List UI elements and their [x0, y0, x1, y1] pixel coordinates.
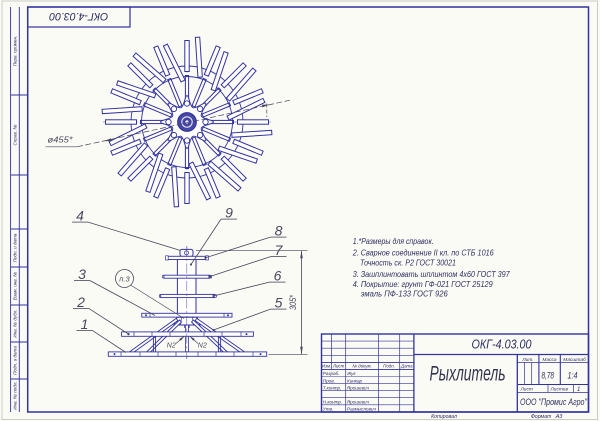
svg-text:4: 4 — [76, 208, 84, 224]
svg-text:№ докум.: № докум. — [352, 363, 371, 368]
svg-text:7: 7 — [275, 242, 284, 258]
svg-text:5: 5 — [275, 295, 283, 311]
svg-text:1.*Размеры для справок.: 1.*Размеры для справок. — [353, 236, 434, 246]
svg-text:ОКГ-4.03.00: ОКГ-4.03.00 — [472, 338, 532, 352]
svg-text:Разраб.: Разраб. — [323, 371, 340, 376]
svg-text:3. Зашплинтовать шплинтом 4х60: 3. Зашплинтовать шплинтом 4х60 ГОСТ 397 — [353, 269, 510, 279]
svg-text:N2: N2 — [198, 343, 207, 350]
svg-text:Справ. №: Справ. № — [13, 125, 18, 146]
svg-text:Масштаб: Масштаб — [563, 357, 586, 363]
svg-text:Размыслович: Размыслович — [347, 407, 377, 412]
svg-text:Копировал: Копировал — [431, 414, 457, 420]
svg-text:6: 6 — [274, 268, 282, 284]
svg-text:Лит.: Лит. — [521, 357, 533, 363]
svg-text:305*: 305* — [288, 295, 299, 310]
svg-text:Пров.: Пров. — [323, 378, 335, 383]
svg-text:1: 1 — [81, 316, 89, 332]
svg-text:Т.контр.: Т.контр. — [323, 385, 342, 390]
svg-text:Подп. и дата: Подп. и дата — [13, 346, 18, 375]
svg-text:2. Сварное соединение II кл. п: 2. Сварное соединение II кл. по СТБ 1016 — [352, 248, 494, 258]
svg-text:Подп.: Подп. — [383, 363, 395, 368]
svg-text:8: 8 — [275, 223, 283, 239]
svg-text:Лист: Лист — [520, 387, 533, 393]
svg-text:8,78: 8,78 — [542, 371, 555, 381]
svg-text:Лист: Лист — [332, 363, 345, 368]
svg-text:п.3: п.3 — [119, 275, 130, 284]
svg-text:Ярошевич: Ярошевич — [346, 400, 370, 405]
svg-text:Кинкар: Кинкар — [347, 378, 363, 383]
svg-text:2: 2 — [76, 294, 85, 310]
svg-text:Листов: Листов — [550, 387, 569, 393]
svg-text:Взам. инв. №: Взам. инв. № — [13, 272, 18, 300]
svg-text:ООО "Промис Агро": ООО "Промис Агро" — [520, 397, 587, 408]
svg-text:Точность ск. Р2 ГОСТ 30021: Точность ск. Р2 ГОСТ 30021 — [360, 258, 456, 268]
svg-text:N2: N2 — [167, 343, 176, 350]
svg-text:Ярошевич: Ярошевич — [346, 385, 370, 390]
svg-text:4. Покрытие: грунт ГФ-021 ГОСТ: 4. Покрытие: грунт ГФ-021 ГОСТ 25129 — [353, 279, 493, 289]
svg-text:9: 9 — [225, 205, 233, 221]
svg-text:Инв. № подл.: Инв. № подл. — [13, 381, 18, 410]
svg-text:Рыхлитель: Рыхлитель — [430, 363, 506, 386]
svg-text:Н.контр.: Н.контр. — [323, 400, 342, 405]
svg-text:3: 3 — [78, 266, 86, 282]
svg-text:А3: А3 — [555, 414, 564, 420]
svg-text:1: 1 — [577, 387, 580, 393]
svg-text:Подп. и дата: Подп. и дата — [13, 233, 18, 262]
svg-text:Изм.: Изм. — [322, 363, 331, 368]
svg-text:Дата: Дата — [400, 363, 413, 368]
svg-text:Формат: Формат — [531, 414, 552, 420]
svg-text:Жук: Жук — [346, 371, 356, 376]
svg-text:Перв. примен.: Перв. примен. — [13, 36, 18, 67]
svg-text:ø455*: ø455* — [48, 136, 74, 145]
svg-text:1:4: 1:4 — [568, 371, 578, 381]
svg-text:эмаль ПФ-133 ГОСТ 926: эмаль ПФ-133 ГОСТ 926 — [361, 289, 448, 299]
svg-text:Утв.: Утв. — [323, 407, 333, 412]
svg-text:Масса: Масса — [542, 357, 557, 363]
svg-text:ОКГ-4.03.00: ОКГ-4.03.00 — [48, 10, 108, 22]
svg-text:Инв. № дубл.: Инв. № дубл. — [13, 309, 18, 337]
